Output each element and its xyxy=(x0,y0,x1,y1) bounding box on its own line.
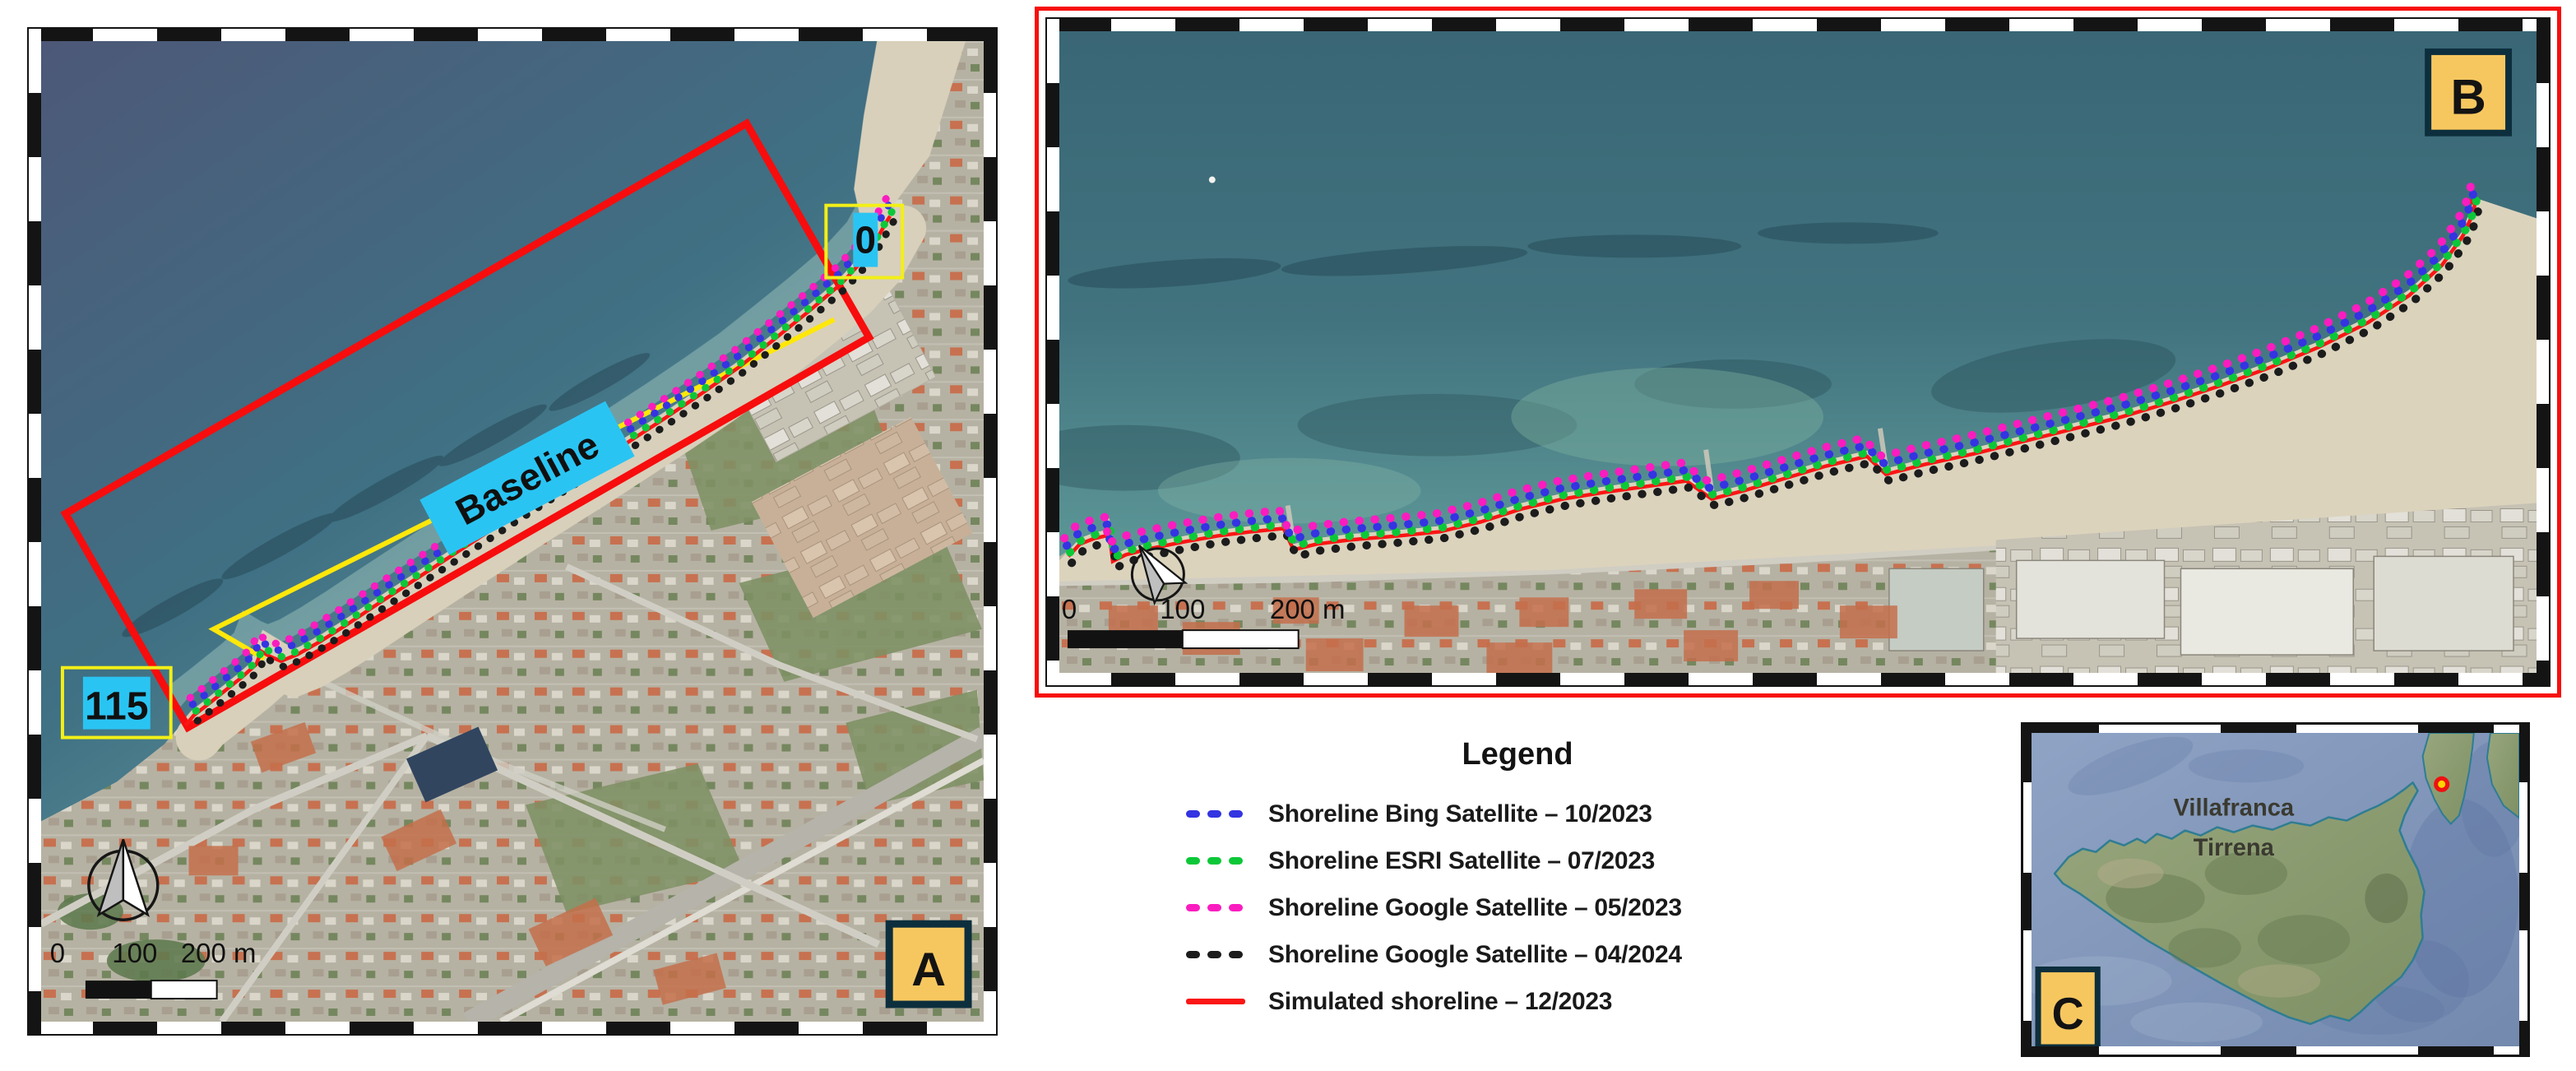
legend-item: Shoreline Google Satellite – 05/2023 xyxy=(1156,884,1879,931)
panel-b-graticule-border xyxy=(2537,19,2549,685)
study-site-dot xyxy=(2436,778,2448,790)
panel-a-graticule-border xyxy=(29,29,41,1034)
svg-text:Tirrena: Tirrena xyxy=(2194,835,2275,861)
svg-text:200 m: 200 m xyxy=(181,938,257,968)
panel-b-frame: 0 100 200 m B xyxy=(1045,17,2551,687)
panel-c-graticule-border xyxy=(2023,1046,2527,1055)
boat xyxy=(1209,177,1216,183)
svg-text:B: B xyxy=(2450,70,2486,125)
svg-text:0: 0 xyxy=(50,938,65,968)
legend-item-label: Shoreline Google Satellite – 04/2024 xyxy=(1268,941,1682,969)
panel-a-graticule-border xyxy=(29,1022,996,1034)
panel-c-graticule-border xyxy=(2519,725,2527,1055)
dashed-line-swatch xyxy=(1186,904,1247,911)
industrial-sheds xyxy=(1889,556,2513,655)
panel-b-satellite-map: 0 100 200 m B xyxy=(1059,31,2537,673)
legend-item: Shoreline ESRI Satellite – 07/2023 xyxy=(1156,837,1879,884)
legend-item-label: Simulated shoreline – 12/2023 xyxy=(1268,988,1612,1016)
panel-a-graticule-border xyxy=(984,29,996,1034)
legend-item: Shoreline Bing Satellite – 10/2023 xyxy=(1156,790,1879,837)
panel-b-graticule-border xyxy=(1047,673,2549,685)
legend-title: Legend xyxy=(1156,737,1879,772)
svg-text:C: C xyxy=(2052,990,2084,1039)
svg-text:100: 100 xyxy=(1160,594,1205,624)
figure-canvas: 0 115 Baseline 0 100 2 xyxy=(0,0,2576,1071)
panel-b-label-box: B xyxy=(2428,52,2509,133)
panel-a-frame: 0 115 Baseline 0 100 2 xyxy=(27,27,998,1036)
legend-item: Simulated shoreline – 12/2023 xyxy=(1156,978,1879,1025)
legend-item-label: Shoreline Google Satellite – 05/2023 xyxy=(1268,894,1682,922)
panel-c-graticule-border xyxy=(2023,725,2527,733)
svg-text:A: A xyxy=(911,943,946,996)
svg-text:200 m: 200 m xyxy=(1270,594,1346,624)
legend: Legend Shoreline Bing Satellite – 10/202… xyxy=(1156,737,1879,1025)
legend-items: Shoreline Bing Satellite – 10/2023Shorel… xyxy=(1156,790,1879,1025)
panel-c-frame: Villafranca Tirrena C xyxy=(2021,722,2530,1057)
dashed-line-swatch xyxy=(1186,951,1247,958)
panel-b-graticule-border xyxy=(1047,19,1059,685)
svg-text:100: 100 xyxy=(112,938,157,968)
dashed-line-swatch xyxy=(1186,810,1247,818)
panel-b-graticule-border xyxy=(1047,19,2549,31)
legend-item-label: Shoreline ESRI Satellite – 07/2023 xyxy=(1268,847,1655,875)
dashed-line-swatch xyxy=(1186,857,1247,865)
svg-text:Villafranca: Villafranca xyxy=(2174,795,2295,822)
svg-text:0: 0 xyxy=(1062,594,1077,624)
panel-c-label-box: C xyxy=(2038,970,2097,1046)
panel-c-graticule-border xyxy=(2023,725,2032,1055)
svg-text:0: 0 xyxy=(855,219,876,262)
panel-a-graticule-border xyxy=(29,29,996,41)
legend-item: Shoreline Google Satellite – 04/2024 xyxy=(1156,931,1879,978)
panel-a-satellite-map: 0 115 Baseline 0 100 2 xyxy=(41,41,984,1022)
solid-line-swatch xyxy=(1186,999,1247,1004)
svg-text:115: 115 xyxy=(85,685,148,729)
panel-c-location-map: Villafranca Tirrena C xyxy=(2032,733,2519,1046)
legend-item-label: Shoreline Bing Satellite – 10/2023 xyxy=(1268,800,1652,828)
panel-b-red-border: 0 100 200 m B xyxy=(1035,7,2561,698)
panel-a-label-box: A xyxy=(889,924,968,1004)
